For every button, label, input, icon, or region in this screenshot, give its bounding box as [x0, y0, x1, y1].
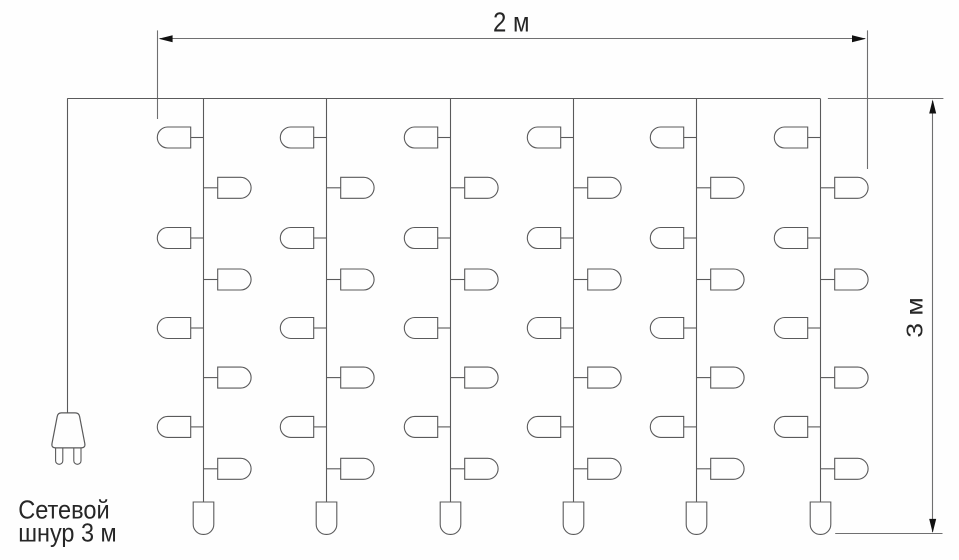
svg-text:2 м: 2 м [493, 7, 530, 38]
svg-text:шнур 3 м: шнур 3 м [18, 517, 117, 547]
svg-text:3 м: 3 м [902, 297, 928, 338]
